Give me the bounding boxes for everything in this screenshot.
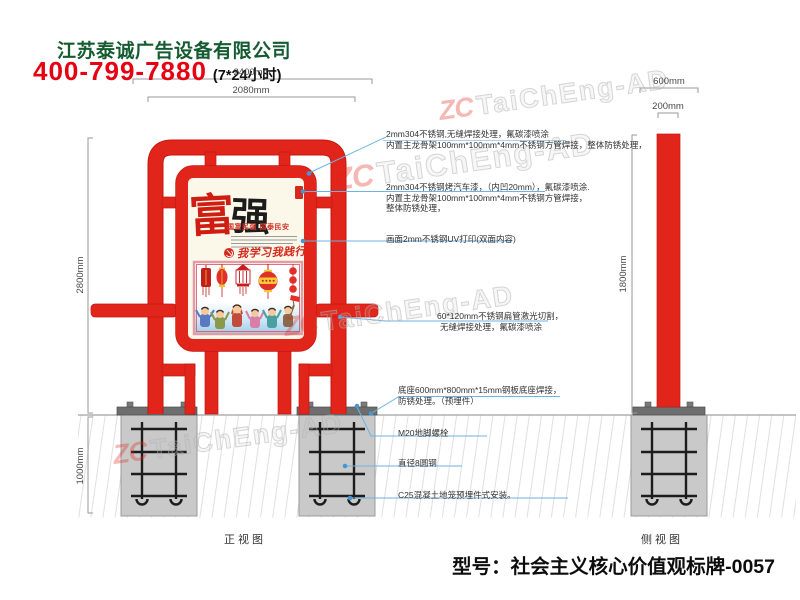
- side-view-label: 侧视图: [627, 531, 697, 547]
- annotation-flat-tube: 60*120mm不锈钢扁管激光切割， 无缝焊接处理，氟碳漆喷涂: [437, 311, 563, 332]
- annotation-uv-print: 画面2mm不锈钢UV打印(双面内容): [386, 234, 516, 245]
- party-emblem-icon: [224, 248, 234, 258]
- poster-slogan: 我学习我践行: [237, 243, 307, 261]
- side-view-pole: [657, 134, 680, 407]
- poster-char-fu: 富: [187, 178, 235, 245]
- front-view-label: 正视图: [210, 531, 280, 547]
- dim-front-frame-width: 2080mm: [221, 85, 281, 96]
- annotation-concrete: C25混凝土地笼预埋件式安装。: [398, 490, 516, 501]
- annotation-recessed-face: 2mm304不锈钢烤汽车漆，（内凹20mm），氟碳漆喷涂. 内置主龙骨架100m…: [386, 182, 590, 214]
- drawing-canvas: [0, 0, 800, 600]
- dim-front-height: 2800mm: [76, 251, 86, 299]
- dim-side-base-width: 600mm: [644, 76, 694, 87]
- annotation-shell: 2mm304不锈钢,无缝焊接处理，氟碳漆喷涂 内置主龙骨架100mm*100mm…: [386, 129, 647, 150]
- annotation-base-plate: 底座600mm*800mm*15mm钢板底座焊接， 防锈处理。（预埋件）: [398, 385, 561, 406]
- spec-drawing-page: ZCTaiChEng-AD ZCTaiChEng-AD ZCTaiChEng-A…: [0, 0, 800, 600]
- annotation-anchor-bolt: M20地脚螺栓: [398, 428, 449, 439]
- poster-subtitle: 国富民强 国泰民安: [227, 222, 289, 232]
- dim-side-pole-width: 200mm: [643, 101, 693, 112]
- phone-number: 400-799-7880: [33, 56, 207, 86]
- poster-char-qiang: 强: [230, 185, 271, 242]
- dim-side-height: 1800mm: [619, 250, 629, 298]
- model-number: 型号：社会主义核心价值观标牌-0057: [430, 550, 775, 579]
- dim-front-overall-width: 2400mm: [222, 67, 282, 78]
- annotation-round-steel: 直径8圆钢: [398, 458, 437, 469]
- dim-foundation-depth: 1000mm: [76, 442, 86, 490]
